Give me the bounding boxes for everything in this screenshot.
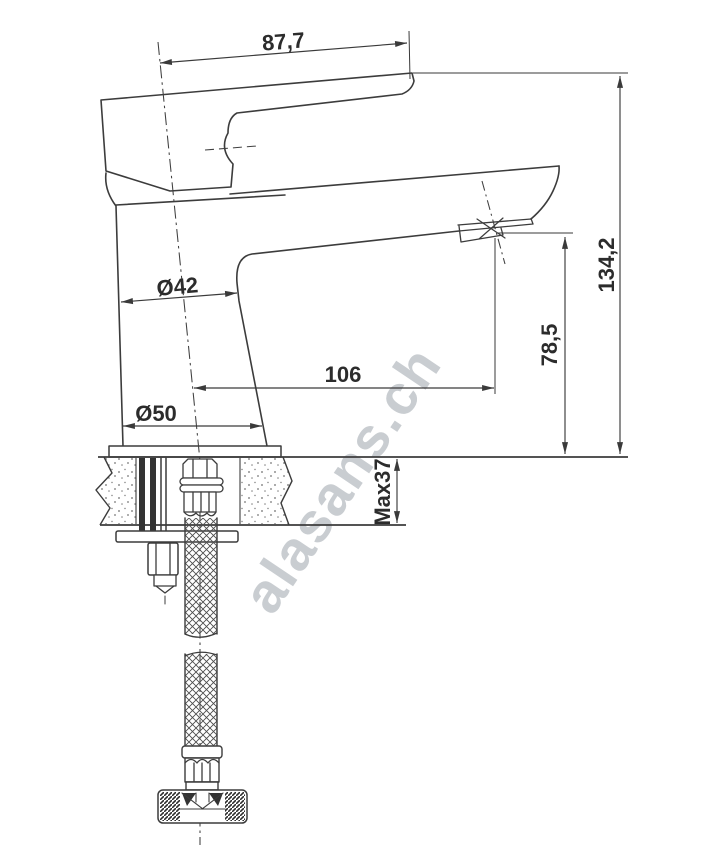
hose-collar bbox=[186, 782, 218, 790]
supply-nut-hatch-left bbox=[160, 792, 180, 821]
counter-stipple-left bbox=[96, 458, 136, 524]
hose-fitting-body bbox=[184, 492, 216, 512]
dim-label-deck-thickness: Max37 bbox=[370, 458, 395, 525]
hose-braid-upper bbox=[185, 518, 217, 634]
hose-braid-lower bbox=[185, 654, 217, 746]
dim-label-body-diameter: Ø42 bbox=[156, 272, 200, 301]
stud-bar bbox=[139, 458, 145, 531]
mounting-washer bbox=[116, 531, 238, 542]
faucet-technical-drawing: alasans.ch bbox=[0, 0, 711, 851]
hose-ferrule bbox=[182, 746, 222, 758]
counter-stipple-right bbox=[240, 458, 292, 524]
dim-label-spout-height: 78,5 bbox=[537, 324, 562, 367]
handle-lever bbox=[101, 73, 414, 191]
base-flange bbox=[109, 446, 281, 457]
dim-label-handle-reach: 87,7 bbox=[261, 27, 306, 55]
dim-label-total-height: 134,2 bbox=[594, 237, 619, 292]
stud-lines bbox=[161, 458, 166, 531]
stud-tip-point bbox=[156, 586, 174, 593]
drawing-canvas: alasans.ch bbox=[0, 0, 711, 851]
hose-fitting-hex bbox=[183, 459, 217, 478]
hose-fitting-ring bbox=[180, 478, 223, 485]
dim-label-spout-reach: 106 bbox=[325, 362, 362, 387]
stud-tip bbox=[154, 575, 176, 586]
hose-fitting-ring bbox=[180, 485, 223, 492]
supply-nut-hatch-right bbox=[225, 792, 245, 821]
stud-bar bbox=[150, 458, 156, 531]
faucet-outline bbox=[101, 73, 559, 457]
ext-line-handle-tip bbox=[409, 31, 410, 79]
dim-label-base-diameter: Ø50 bbox=[135, 401, 177, 426]
stud-nut bbox=[148, 543, 178, 575]
